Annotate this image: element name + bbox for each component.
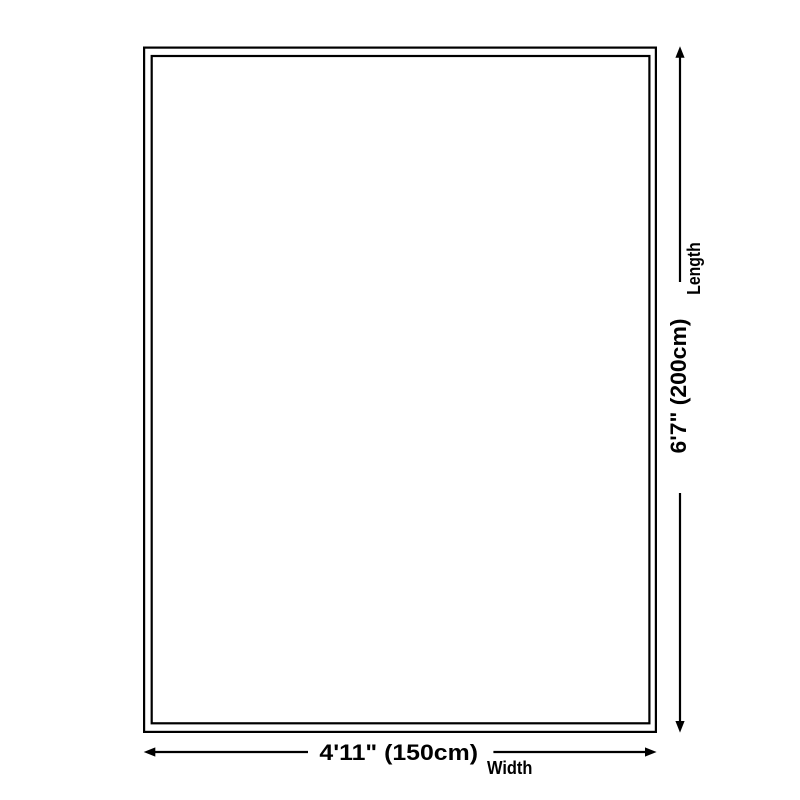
svg-text:Width: Width — [487, 758, 532, 778]
svg-text:Length: Length — [684, 242, 704, 295]
svg-text:4'11" (150cm): 4'11" (150cm) — [319, 740, 478, 765]
svg-text:6'7" (200cm): 6'7" (200cm) — [666, 319, 691, 454]
